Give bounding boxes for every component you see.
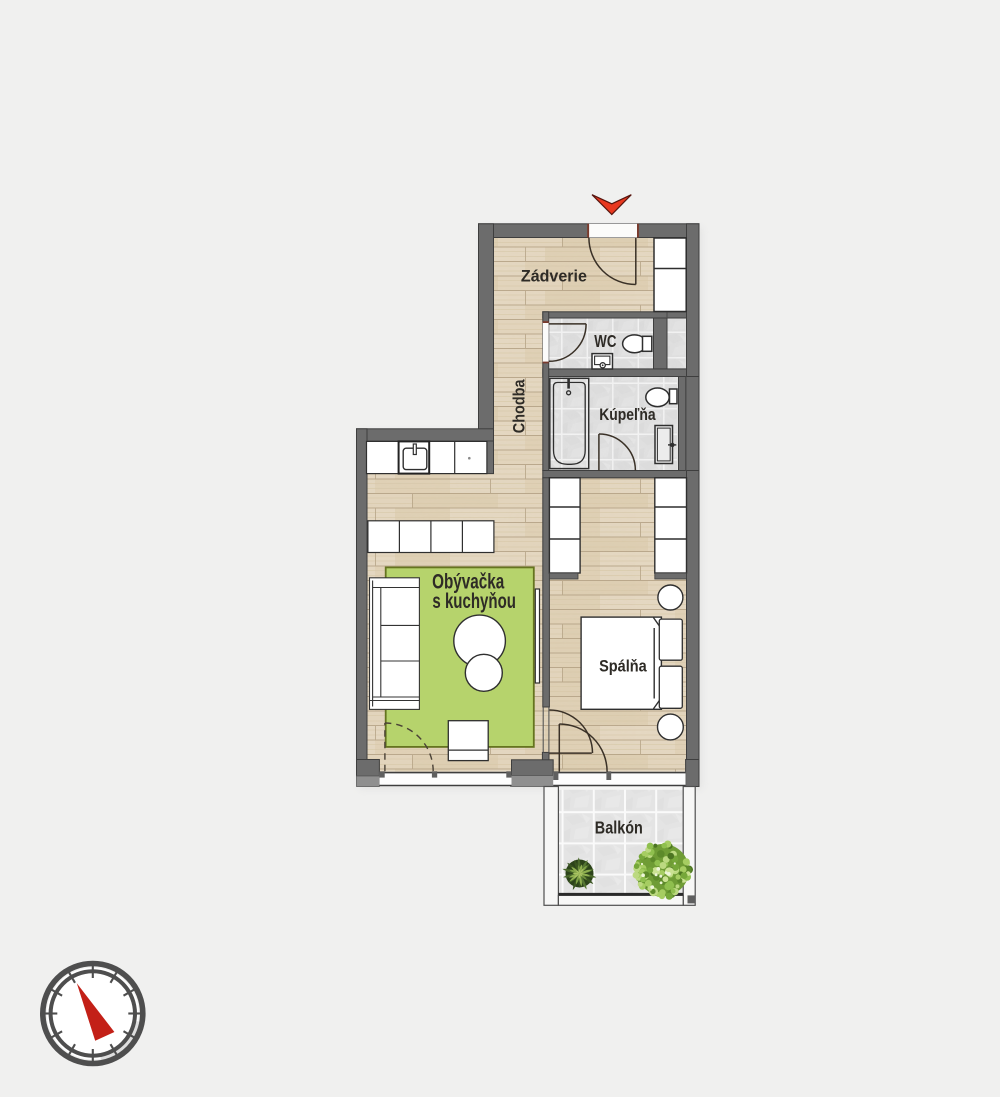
svg-text:WC: WC [594, 331, 616, 351]
svg-text:Chodba: Chodba [510, 379, 529, 433]
svg-text:Balkón: Balkón [595, 818, 643, 838]
svg-text:s kuchyňou: s kuchyňou [432, 590, 516, 613]
svg-text:Kúpeľňa: Kúpeľňa [599, 405, 656, 424]
svg-text:Zádverie: Zádverie [521, 266, 587, 285]
svg-text:Spálňa: Spálňa [599, 657, 647, 676]
